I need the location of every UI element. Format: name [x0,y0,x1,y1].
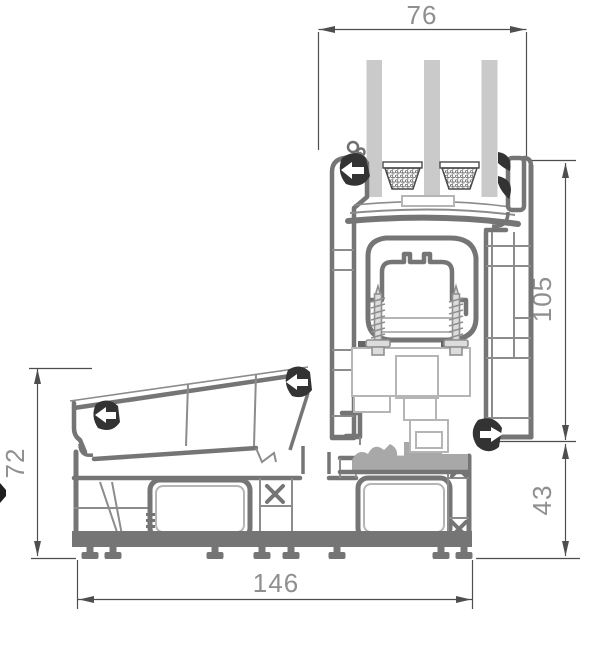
threshold-base-plate [72,531,472,547]
glass-pane-inner [482,60,498,197]
frame-profile [476,158,531,438]
threshold-feet [82,545,473,559]
threshold-chamber-right [358,478,450,538]
arrow-left-icon [79,596,94,603]
arrow-right-icon [456,596,471,603]
arrow-down-icon [34,541,41,556]
bridge-line [350,209,515,215]
gearbox-lower [404,398,436,420]
dimension-label-146: 146 [253,568,299,598]
spacer-top [440,162,479,168]
profile-drawing-canvas: 76 105 43 72 146 [0,0,603,650]
window-profile-cross-section: 76 105 43 72 146 [0,0,603,650]
dimension-label-76: 76 [407,0,438,30]
gasket-glass-upper [498,152,511,171]
arrow-up-icon [34,369,41,384]
arrow-up-icon [562,163,569,178]
glazing-unit [367,60,498,197]
cropped-dimension-mark [0,483,6,503]
spacer-top [383,162,422,168]
glass-pane-middle [424,60,440,197]
hardware-plate [376,318,456,332]
arrow-up-icon [562,444,569,459]
arrow-left-icon [320,26,336,33]
lock-hardware [352,348,470,452]
espagnolette [354,396,390,412]
setting-block [402,196,454,206]
threshold-chamber-left [150,480,250,538]
brush-seal-icon [146,513,155,528]
spacer-bar [385,168,420,189]
dimension-right-lower: 43 [476,444,580,559]
dimension-label-72: 72 [0,448,30,479]
dimension-bottom-width: 146 [78,560,473,609]
dimension-label-43: 43 [527,485,557,516]
arrow-right-icon [510,26,526,33]
arrow-down-icon [562,425,569,440]
arrow-down-icon [562,541,569,556]
glazing-bridge [348,218,518,224]
spacer-bar [442,168,477,189]
